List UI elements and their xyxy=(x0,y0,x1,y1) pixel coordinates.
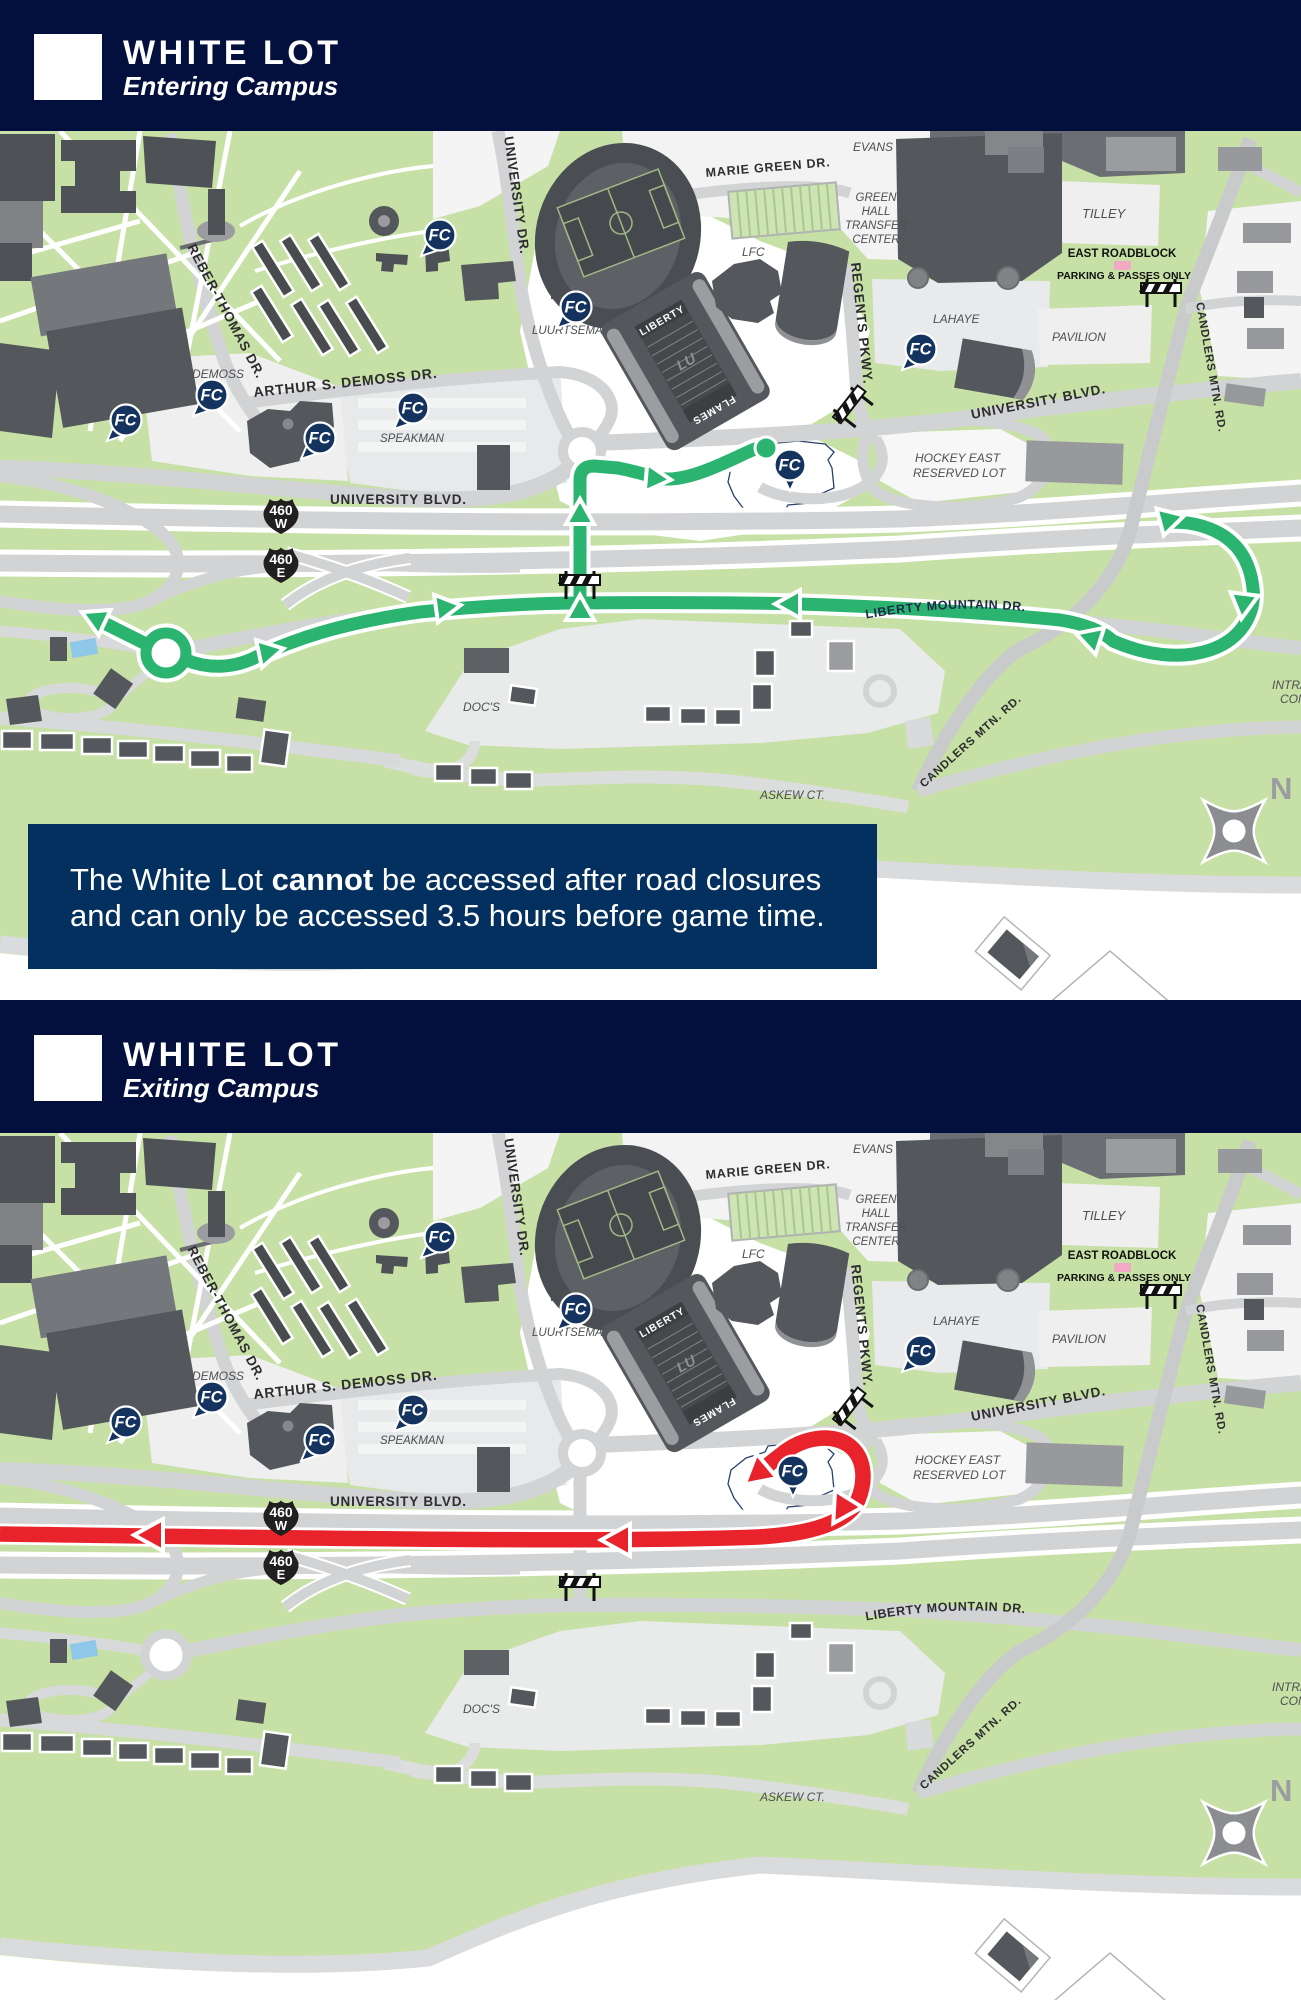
svg-text:WHITE LOT: WHITE LOT xyxy=(123,34,341,72)
svg-text:WHITE LOT: WHITE LOT xyxy=(123,1036,341,1074)
svg-text:The White Lot cannot be access: The White Lot cannot be accessed after r… xyxy=(70,862,821,897)
svg-text:Exiting Campus: Exiting Campus xyxy=(123,1073,319,1103)
svg-text:W: W xyxy=(275,1518,288,1533)
svg-text:Entering Campus: Entering Campus xyxy=(123,71,338,101)
svg-text:and can only be accessed 3.5 h: and can only be accessed 3.5 hours befor… xyxy=(70,898,825,933)
svg-text:E: E xyxy=(277,1567,286,1582)
